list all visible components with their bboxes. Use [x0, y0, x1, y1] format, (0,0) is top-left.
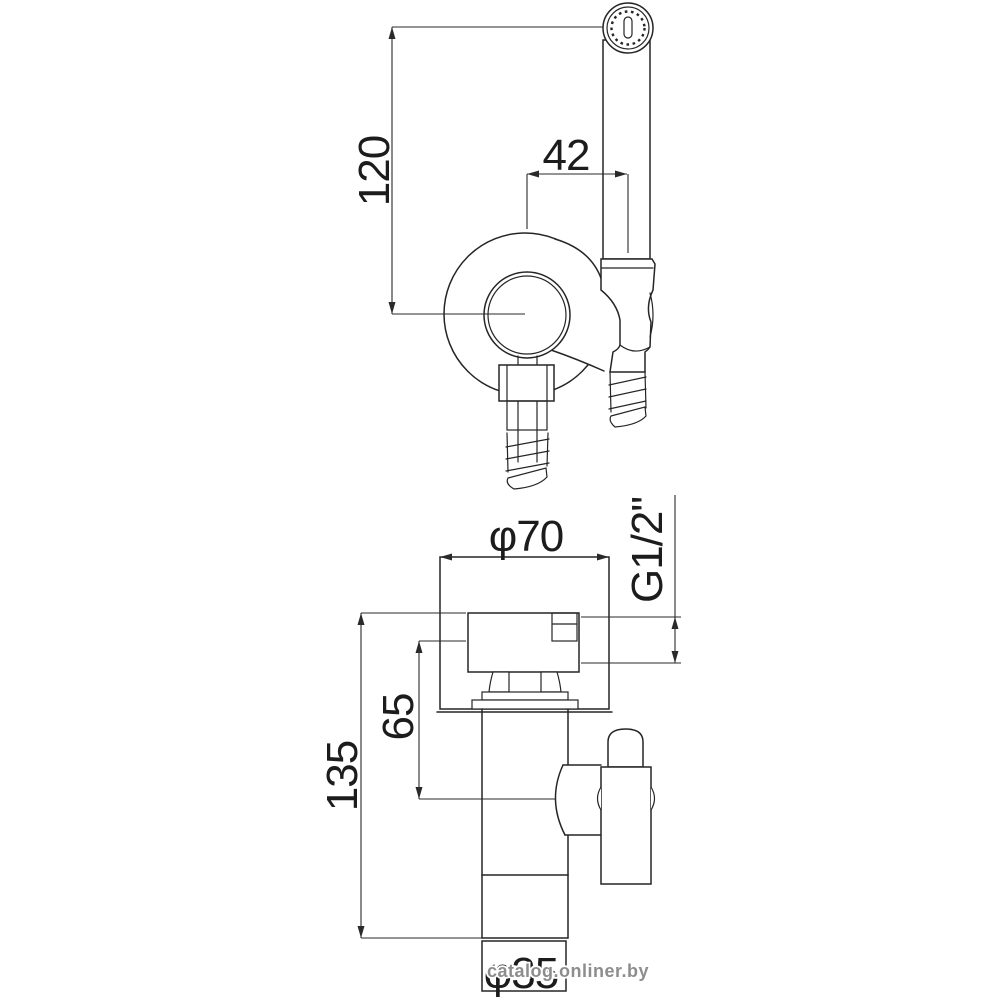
valve-handle — [598, 729, 655, 884]
shower-hose — [499, 356, 554, 489]
dim-42-label: 42 — [543, 131, 590, 180]
valve-lever — [601, 767, 651, 884]
valve-pivot-right — [651, 787, 655, 810]
hose-thread-tip — [507, 468, 547, 489]
valve-body-block — [468, 613, 579, 672]
nozzle-thread — [609, 372, 646, 427]
catalog-image: 120 42 φ70 G1/2" — [0, 0, 1000, 1000]
dim-thread-label: G1/2" — [623, 497, 672, 603]
nozzle-thread-tip — [610, 407, 646, 427]
technical-drawing: 120 42 φ70 G1/2" — [0, 0, 1000, 1000]
bracket-ring-inner — [488, 276, 566, 354]
dim-135-label: 135 — [318, 741, 367, 811]
sprayer-head — [603, 3, 653, 53]
spray-head-slot — [624, 17, 632, 38]
valve-knob — [608, 729, 643, 767]
hose-fitting — [507, 401, 547, 430]
valve-side-joint — [555, 765, 601, 835]
watermark-text: catalog.onliner.by — [487, 961, 649, 981]
sprayer-assembly-view — [444, 3, 655, 489]
hose-thread — [506, 433, 549, 489]
dimension-70: φ70 — [440, 512, 609, 561]
dim-120-label: 120 — [350, 136, 399, 206]
valve-assembly-view — [437, 557, 655, 991]
dim-70-label: φ70 — [489, 512, 563, 561]
dim-65-label: 65 — [374, 694, 423, 741]
sprayer-handle — [603, 40, 650, 259]
